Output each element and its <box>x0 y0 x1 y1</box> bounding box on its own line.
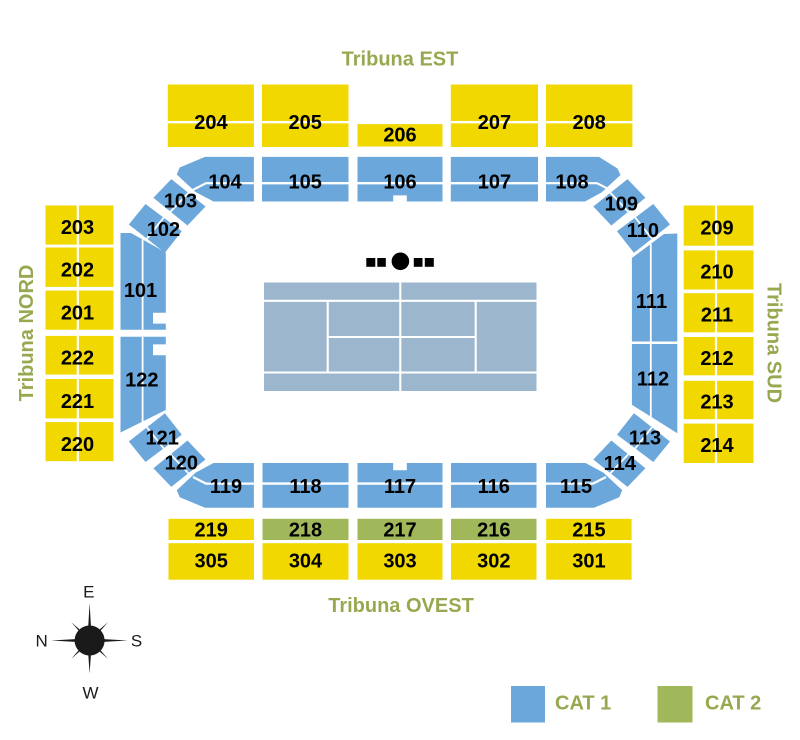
svg-text:116: 116 <box>478 476 510 498</box>
svg-text:CAT 2: CAT 2 <box>705 693 761 715</box>
svg-text:115: 115 <box>560 476 592 498</box>
svg-text:303: 303 <box>383 551 416 573</box>
svg-text:E: E <box>83 582 94 601</box>
svg-text:Tribuna EST: Tribuna EST <box>342 49 459 71</box>
svg-text:N: N <box>35 631 47 650</box>
svg-text:218: 218 <box>289 520 322 542</box>
svg-text:109: 109 <box>605 194 638 216</box>
svg-text:207: 207 <box>478 112 511 134</box>
svg-text:213: 213 <box>700 392 733 414</box>
svg-text:103: 103 <box>164 191 197 213</box>
svg-text:203: 203 <box>61 217 94 239</box>
svg-text:214: 214 <box>700 435 734 457</box>
svg-text:221: 221 <box>61 391 94 413</box>
svg-text:W: W <box>82 684 98 703</box>
svg-text:209: 209 <box>700 217 733 239</box>
svg-text:211: 211 <box>701 304 733 326</box>
svg-text:120: 120 <box>165 452 198 474</box>
svg-text:S: S <box>131 631 142 650</box>
svg-text:202: 202 <box>61 259 94 281</box>
svg-text:210: 210 <box>700 262 733 284</box>
svg-text:114: 114 <box>604 453 637 475</box>
svg-text:111: 111 <box>636 291 667 313</box>
svg-text:301: 301 <box>572 551 605 573</box>
svg-text:108: 108 <box>555 172 588 194</box>
svg-text:206: 206 <box>383 124 416 146</box>
svg-text:104: 104 <box>208 172 242 194</box>
svg-text:118: 118 <box>289 476 321 498</box>
svg-text:110: 110 <box>627 220 659 242</box>
svg-text:216: 216 <box>477 520 510 542</box>
svg-text:201: 201 <box>61 302 94 324</box>
svg-text:Tribuna OVEST: Tribuna OVEST <box>328 595 474 617</box>
svg-text:119: 119 <box>210 476 242 498</box>
svg-text:212: 212 <box>700 348 733 370</box>
svg-text:204: 204 <box>194 112 228 134</box>
svg-text:302: 302 <box>477 551 510 573</box>
svg-text:208: 208 <box>573 112 606 134</box>
svg-text:304: 304 <box>289 551 323 573</box>
svg-text:112: 112 <box>637 369 669 391</box>
svg-text:117: 117 <box>384 476 416 498</box>
svg-text:107: 107 <box>478 172 511 194</box>
svg-text:205: 205 <box>289 112 322 134</box>
svg-text:Tribuna NORD: Tribuna NORD <box>16 265 38 402</box>
svg-text:222: 222 <box>61 347 94 369</box>
svg-text:113: 113 <box>629 427 661 449</box>
svg-text:305: 305 <box>195 551 228 573</box>
svg-text:122: 122 <box>125 370 158 392</box>
svg-text:105: 105 <box>289 172 322 194</box>
svg-text:101: 101 <box>124 280 157 302</box>
svg-text:CAT 1: CAT 1 <box>555 693 611 715</box>
svg-text:Tribuna SUD: Tribuna SUD <box>762 283 784 403</box>
svg-text:217: 217 <box>383 520 416 542</box>
svg-text:102: 102 <box>147 219 180 241</box>
svg-text:106: 106 <box>383 172 416 194</box>
svg-text:215: 215 <box>572 520 605 542</box>
svg-text:220: 220 <box>61 434 94 456</box>
svg-text:121: 121 <box>146 428 179 450</box>
svg-text:219: 219 <box>195 520 228 542</box>
